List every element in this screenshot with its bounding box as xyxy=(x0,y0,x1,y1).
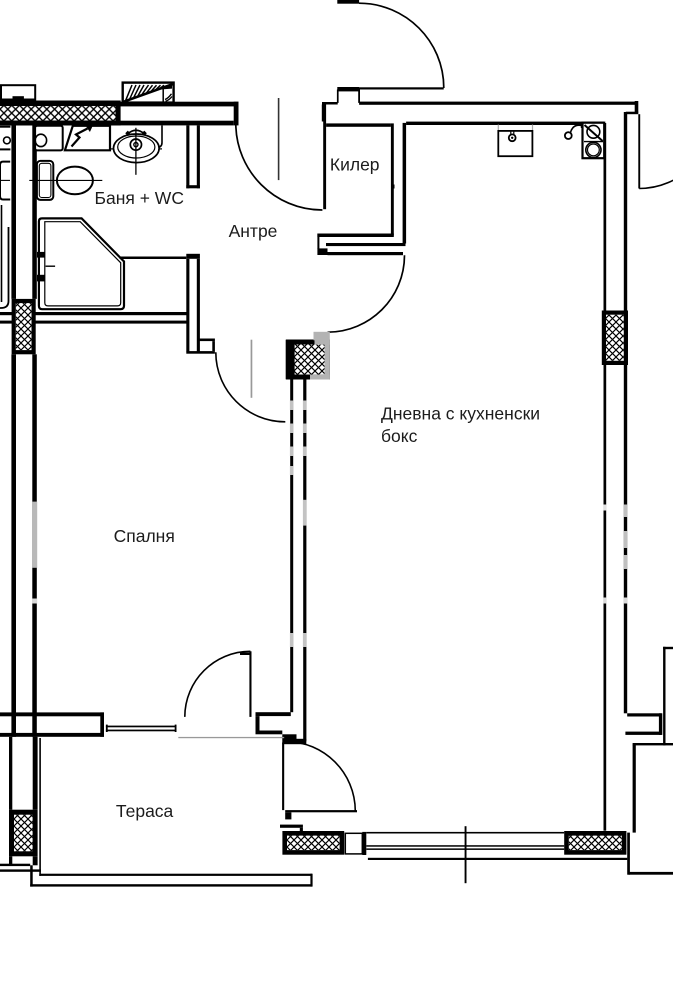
svg-text:Тераса: Тераса xyxy=(116,801,174,821)
svg-text:Дневна с кухненски: Дневна с кухненски xyxy=(381,403,540,423)
svg-text:Спалня: Спалня xyxy=(114,526,175,546)
svg-text:Баня + WC: Баня + WC xyxy=(95,188,184,208)
svg-text:Антре: Антре xyxy=(229,221,278,241)
svg-text:Килер: Килер xyxy=(330,155,380,175)
svg-text:бокс: бокс xyxy=(381,426,418,446)
